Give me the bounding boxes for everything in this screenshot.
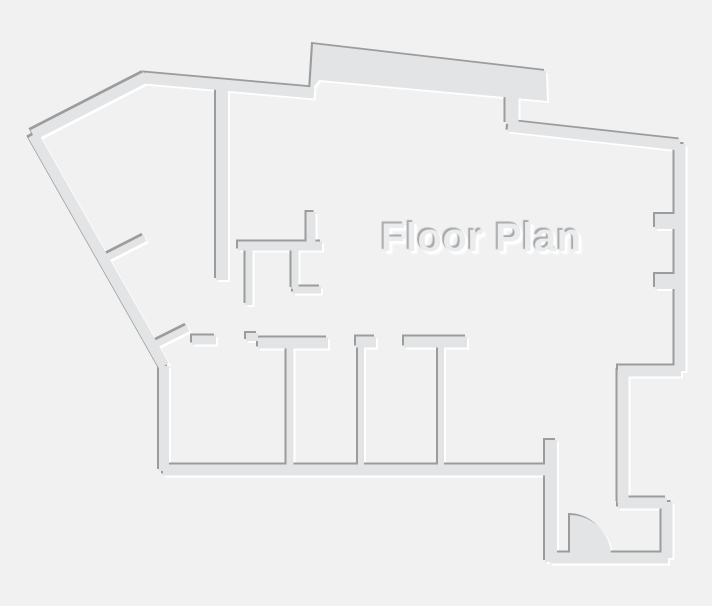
walls-group [33, 44, 681, 562]
wall-segment [33, 77, 146, 135]
door-swing-arc [570, 515, 611, 556]
floor-plan-stage: Floor Plan [0, 0, 712, 606]
wall-segment [508, 126, 680, 145]
wall-segment [154, 328, 188, 345]
wall-segment [144, 78, 314, 93]
floor-plan-title: Floor Plan [381, 214, 582, 262]
floor-plan-drawing [0, 0, 712, 606]
right-wall-niche-lower [655, 274, 677, 289]
wall-segment [33, 135, 164, 366]
top-bump-wall [310, 44, 547, 101]
wall-segment [104, 238, 145, 259]
right-wall-niche-upper [655, 214, 677, 229]
